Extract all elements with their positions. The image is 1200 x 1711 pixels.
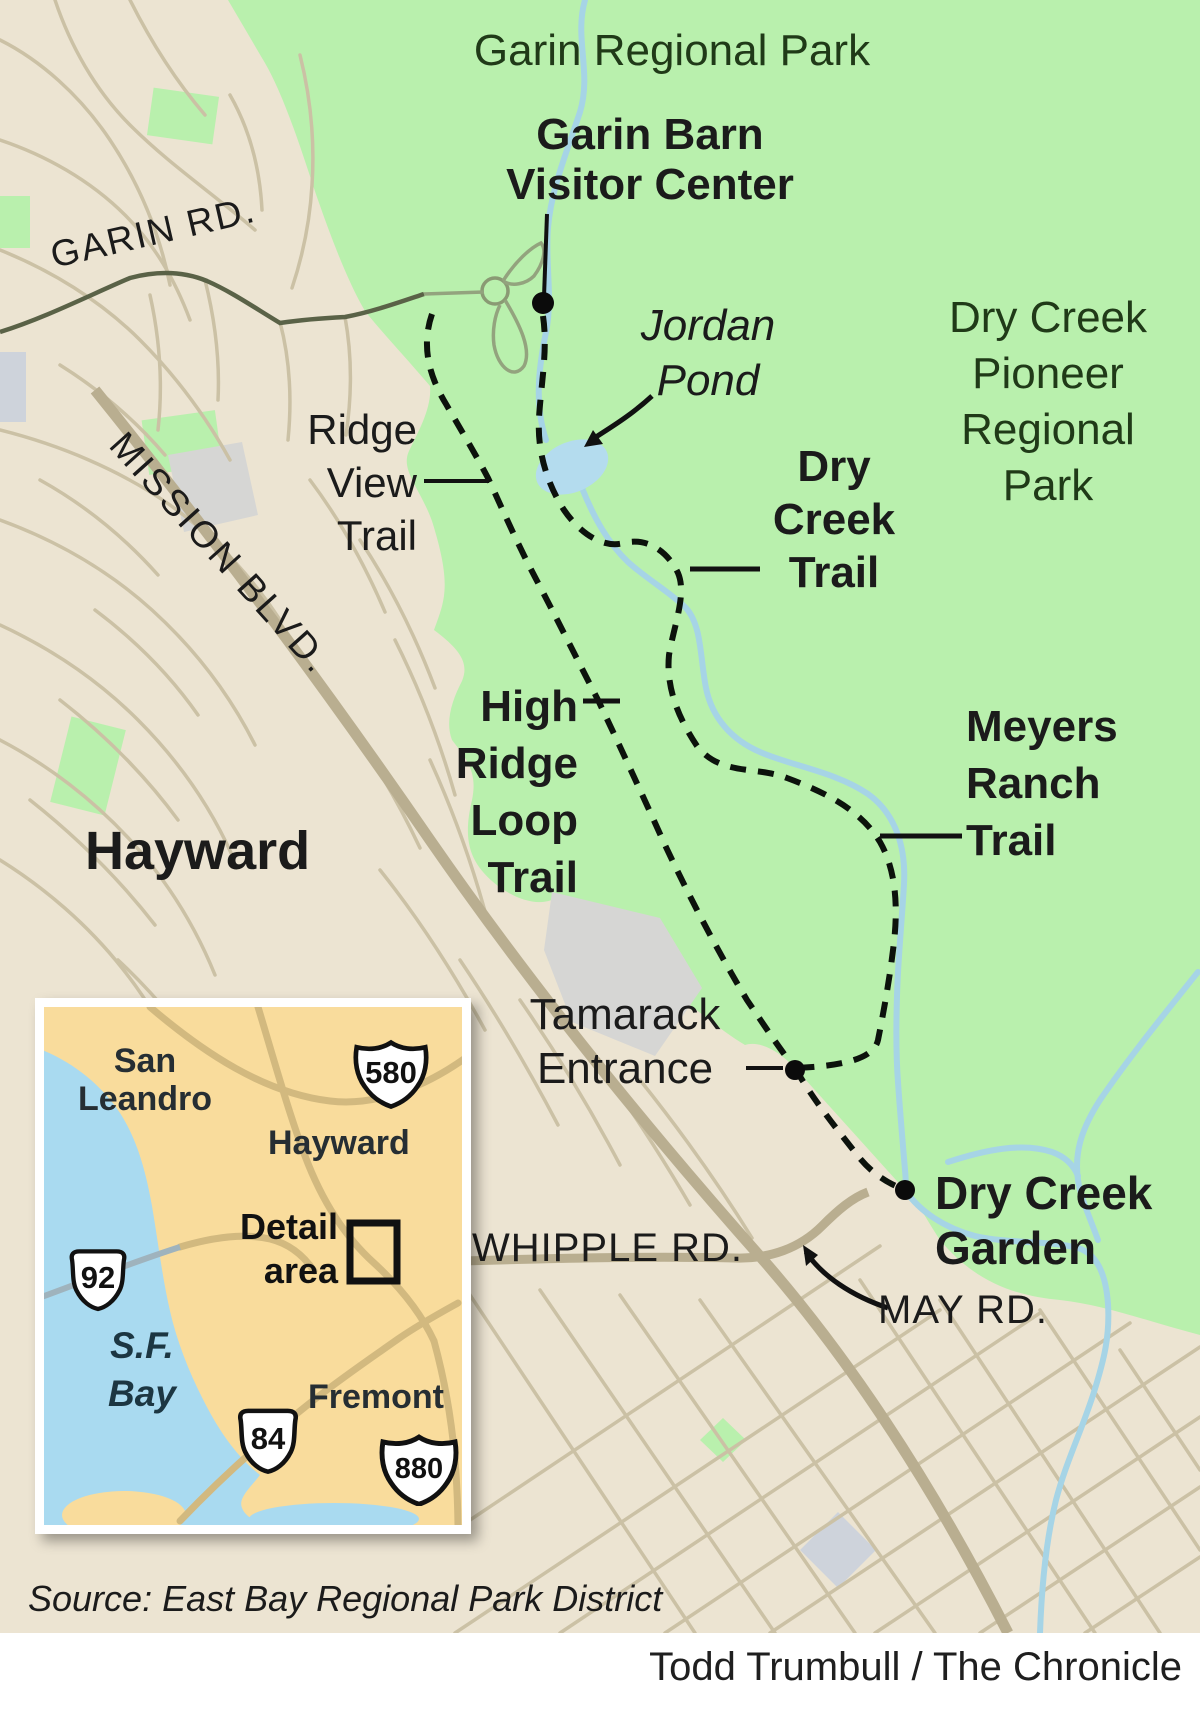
interstate-580-shield: 580 xyxy=(352,1037,430,1109)
state-route-92-shield: 92 xyxy=(62,1242,134,1314)
park-title: Garin Regional Park xyxy=(447,26,897,76)
ridge-view-trail-label: Ridge View Trail xyxy=(267,403,417,562)
tamarack-entrance-label: Tamarack Entrance xyxy=(510,988,740,1096)
high-ridge-loop-trail-label: High Ridge Loop Trail xyxy=(428,678,578,906)
dry-creek-pioneer-park-label: Dry Creek Pioneer Regional Park xyxy=(928,290,1168,514)
map-canvas: Garin Regional Park Garin Barn Visitor C… xyxy=(0,0,1200,1711)
dry-creek-garden-label: Dry Creek Garden xyxy=(935,1166,1195,1276)
fremont-label: Fremont xyxy=(308,1378,444,1417)
detail-area-label: Detail area xyxy=(198,1205,338,1293)
meyers-ranch-trail-label: Meyers Ranch Trail xyxy=(966,698,1176,869)
sf-bay-label: S.F. Bay xyxy=(72,1322,212,1418)
dry-creek-garden-dot xyxy=(895,1180,915,1200)
hayward-inset-label: Hayward xyxy=(268,1124,410,1163)
hayward-city-label: Hayward xyxy=(85,820,310,882)
visitor-center-dot xyxy=(532,292,554,314)
may-rd-label: MAY RD. xyxy=(878,1288,1048,1333)
tamarack-entrance-dot xyxy=(785,1060,805,1080)
san-leandro-label: San Leandro xyxy=(55,1042,235,1118)
visitor-center-label: Garin Barn Visitor Center xyxy=(455,110,845,210)
state-route-84-shield: 84 xyxy=(230,1402,306,1476)
credit-strip: Todd Trumbull / The Chronicle xyxy=(0,1633,1200,1711)
interstate-880-shield: 880 xyxy=(378,1432,460,1506)
dry-creek-trail-label: Dry Creek Trail xyxy=(744,440,924,599)
jordan-pond-label: Jordan Pond xyxy=(623,298,793,408)
source-line: Source: East Bay Regional Park District xyxy=(28,1578,662,1620)
whipple-rd-label: WHIPPLE RD. xyxy=(472,1226,743,1271)
inset-map: San Leandro Hayward Detail area S.F. Bay… xyxy=(35,998,471,1534)
credit-line: Todd Trumbull / The Chronicle xyxy=(282,1645,1182,1690)
detail-area-box xyxy=(350,1223,397,1281)
